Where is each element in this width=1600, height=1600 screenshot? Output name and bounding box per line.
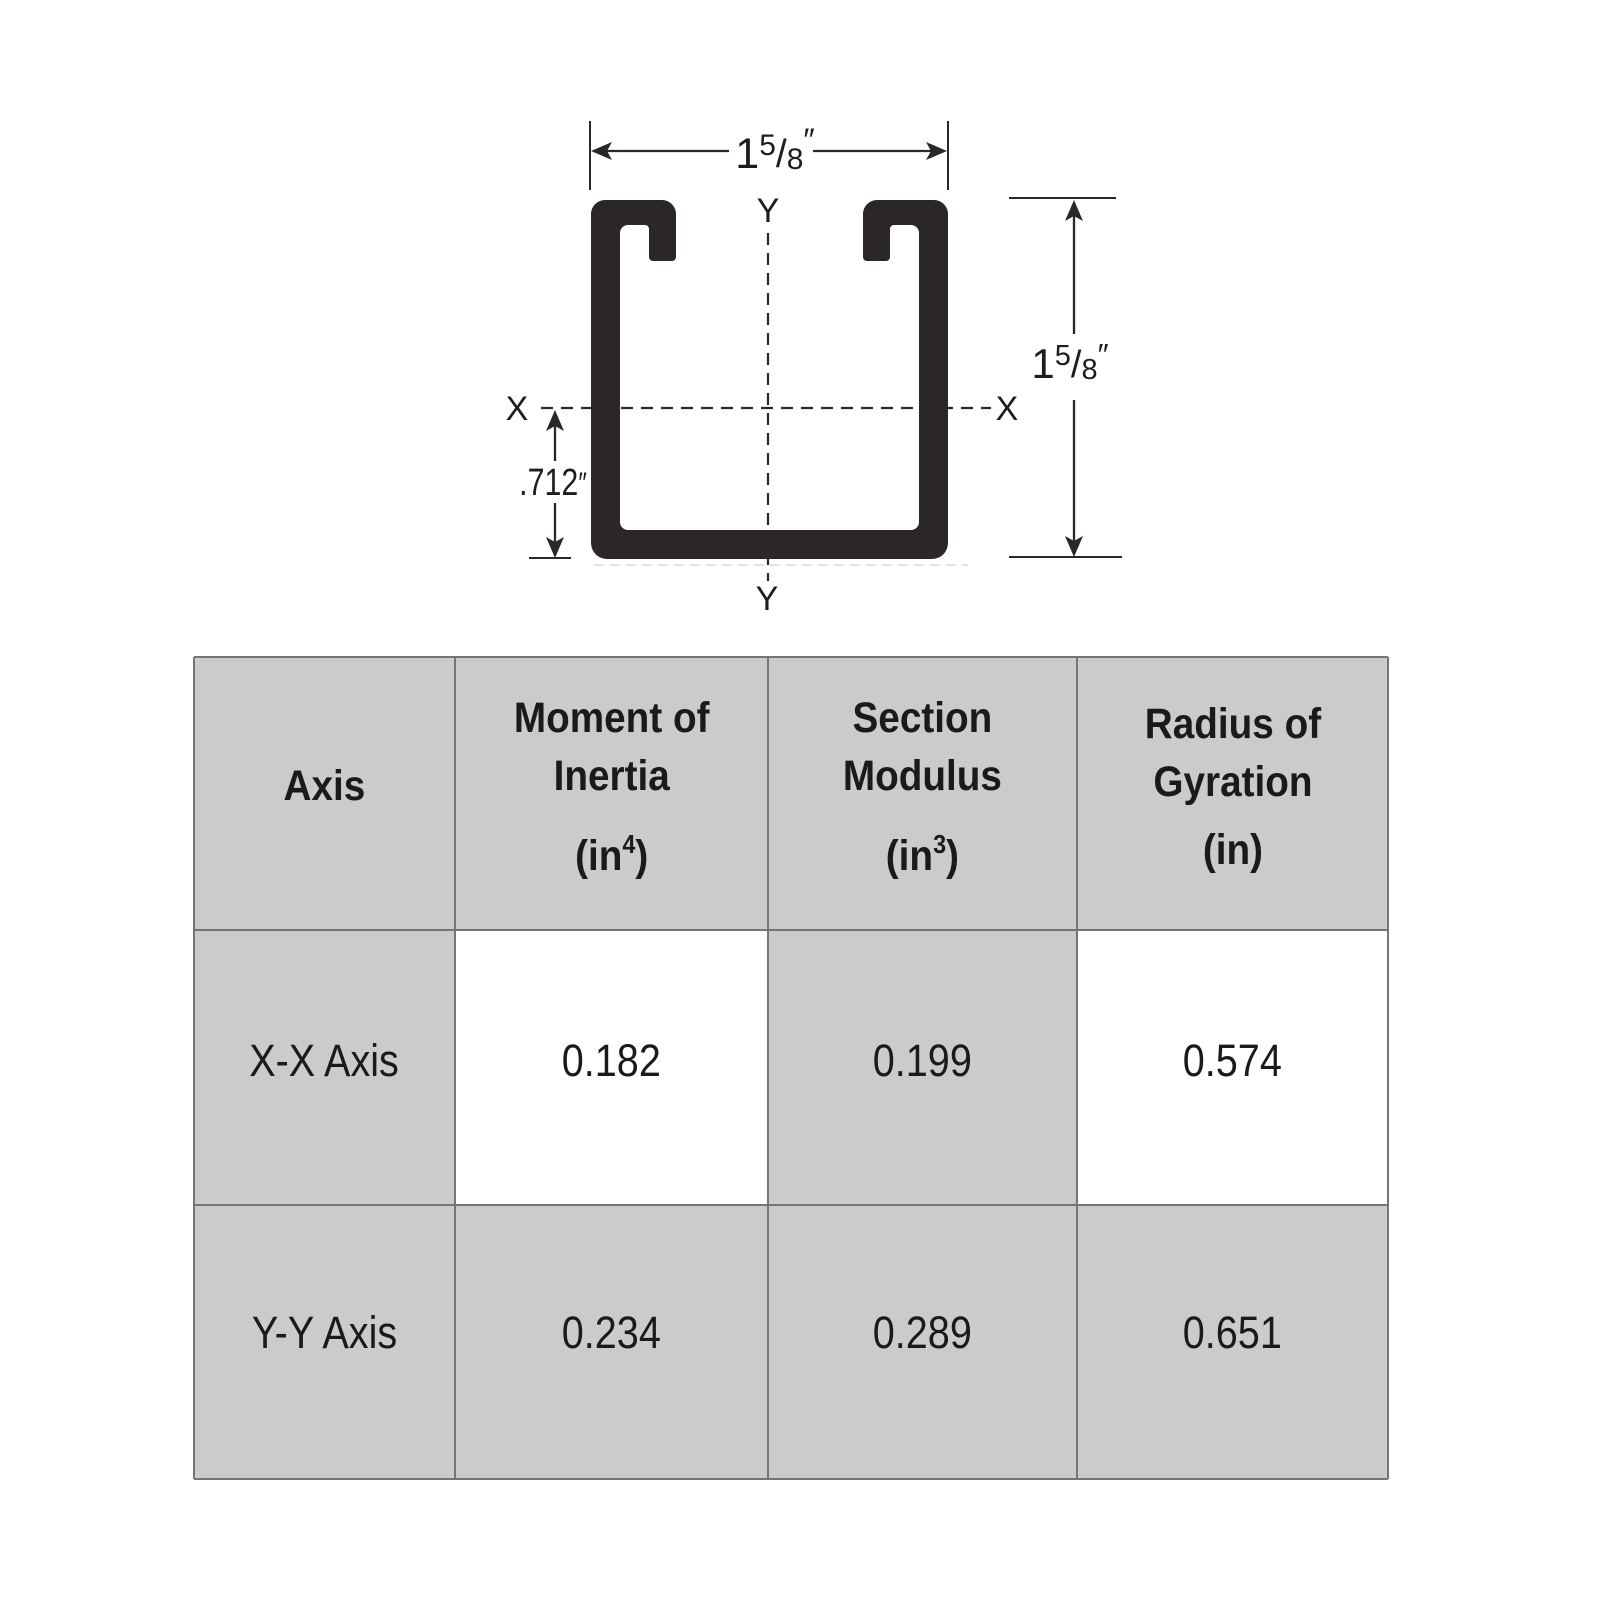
svg-text:X: X (506, 390, 529, 428)
svg-text:Y: Y (756, 580, 779, 618)
svg-text:X: X (996, 390, 1019, 428)
svg-text:15/8″: 15/8″ (735, 122, 814, 178)
svg-text:15/8″: 15/8″ (1031, 337, 1108, 387)
svg-text:.712″: .712″ (519, 462, 587, 504)
svg-text:Y: Y (757, 192, 780, 230)
